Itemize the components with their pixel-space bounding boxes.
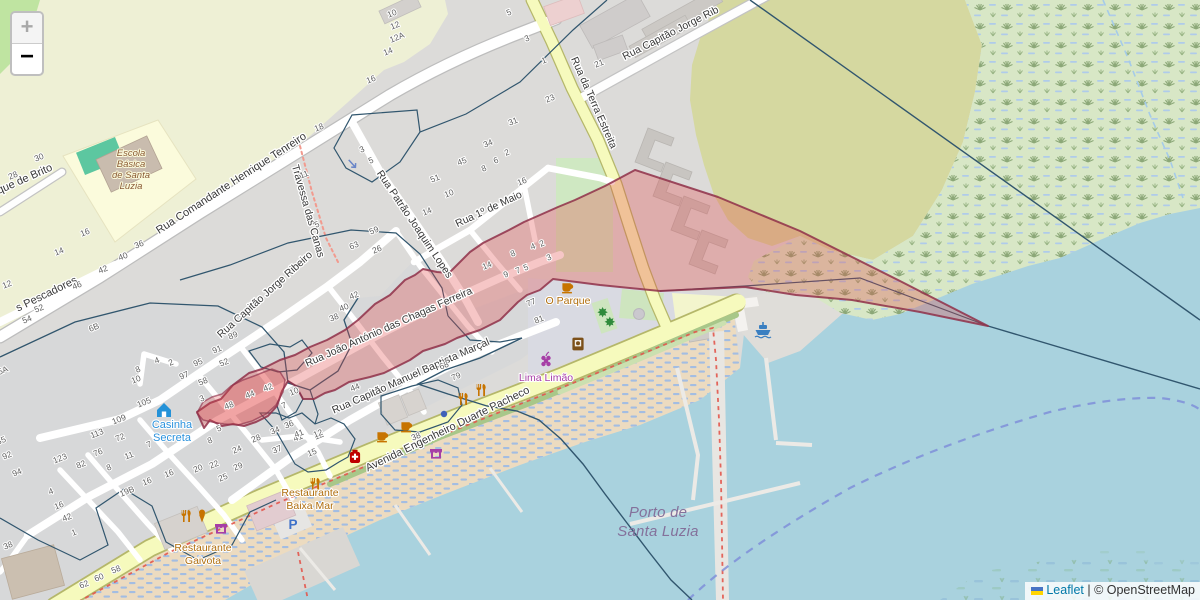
svg-text:Gaivota: Gaivota bbox=[185, 555, 221, 567]
svg-text:Restaurante: Restaurante bbox=[281, 487, 338, 499]
svg-text:Básica: Básica bbox=[117, 159, 146, 170]
svg-text:Baixa Mar: Baixa Mar bbox=[286, 500, 334, 512]
svg-text:Casinha: Casinha bbox=[152, 419, 193, 431]
svg-text:Secreta: Secreta bbox=[153, 432, 192, 444]
svg-text:Lima Limão: Lima Limão bbox=[519, 372, 573, 384]
svg-text:O Parque: O Parque bbox=[546, 295, 591, 307]
svg-text:Luzia: Luzia bbox=[120, 181, 143, 192]
svg-text:Restaurante: Restaurante bbox=[174, 542, 231, 554]
svg-text:Porto de: Porto de bbox=[629, 504, 687, 521]
svg-text:P: P bbox=[288, 517, 297, 532]
svg-text:Santa Luzia: Santa Luzia bbox=[617, 523, 698, 540]
svg-text:de Santa: de Santa bbox=[112, 170, 150, 181]
svg-text:Escola: Escola bbox=[117, 148, 146, 159]
